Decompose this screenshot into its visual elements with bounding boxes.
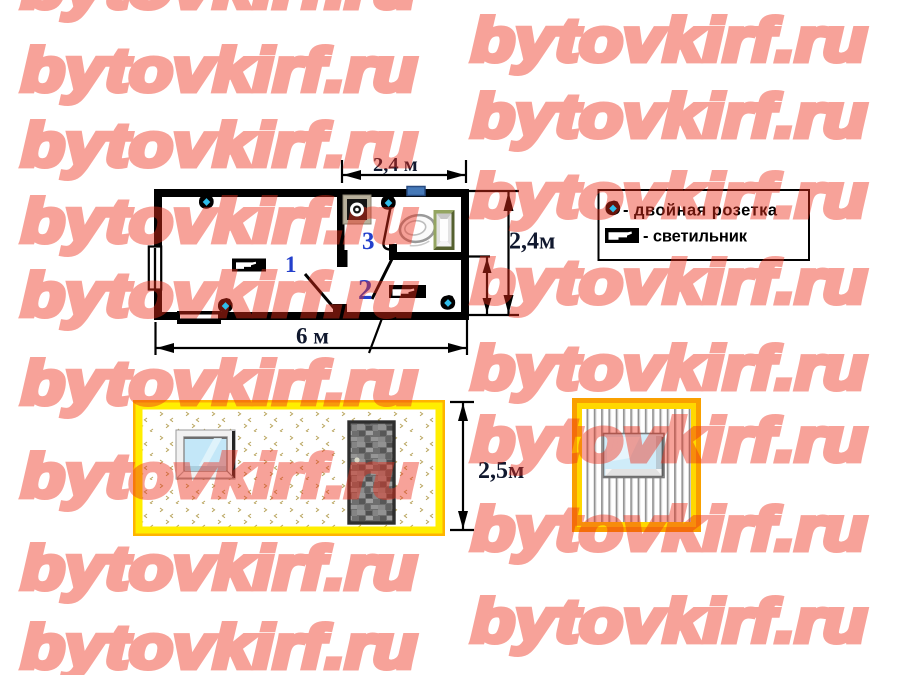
svg-text:bytovkirf.ru: bytovkirf.ru	[21, 261, 417, 329]
svg-text:bytovkirf.ru: bytovkirf.ru	[21, 613, 417, 675]
svg-text:bytovkirf.ru: bytovkirf.ru	[471, 587, 867, 655]
svg-text:bytovkirf.ru: bytovkirf.ru	[471, 6, 867, 74]
svg-text:- светильник: - светильник	[643, 228, 748, 246]
svg-text:bytovkirf.ru: bytovkirf.ru	[471, 82, 867, 150]
svg-text:bytovkirf.ru: bytovkirf.ru	[21, 0, 417, 21]
svg-text:bytovkirf.ru: bytovkirf.ru	[21, 111, 417, 179]
svg-text:bytovkirf.ru: bytovkirf.ru	[21, 36, 417, 104]
svg-text:bytovkirf.ru: bytovkirf.ru	[471, 248, 867, 316]
svg-text:bytovkirf.ru: bytovkirf.ru	[471, 406, 867, 474]
svg-text:bytovkirf.ru: bytovkirf.ru	[471, 334, 867, 402]
svg-text:bytovkirf.ru: bytovkirf.ru	[21, 349, 417, 417]
svg-text:bytovkirf.ru: bytovkirf.ru	[21, 442, 417, 510]
svg-text:bytovkirf.ru: bytovkirf.ru	[21, 534, 417, 602]
svg-text:bytovkirf.ru: bytovkirf.ru	[471, 162, 867, 230]
svg-text:bytovkirf.ru: bytovkirf.ru	[471, 495, 867, 563]
svg-text:bytovkirf.ru: bytovkirf.ru	[21, 187, 417, 255]
